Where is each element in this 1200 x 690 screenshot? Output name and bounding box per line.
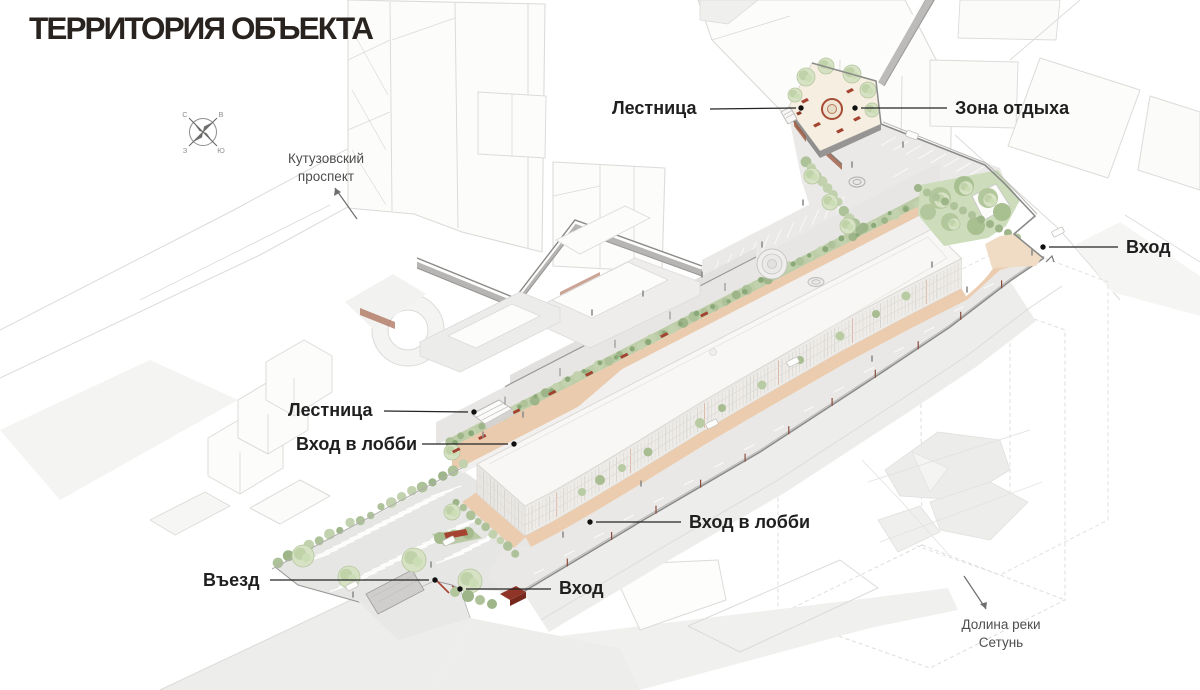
svg-text:проспект: проспект xyxy=(298,169,354,184)
svg-text:Вход в лобби: Вход в лобби xyxy=(689,512,810,532)
svg-text:Зона отдыха: Зона отдыха xyxy=(955,98,1070,118)
svg-text:Ю: Ю xyxy=(217,146,225,155)
svg-text:Лестница: Лестница xyxy=(288,400,373,420)
svg-text:ТЕРРИТОРИЯ ОБЪЕКТА: ТЕРРИТОРИЯ ОБЪЕКТА xyxy=(29,10,373,46)
svg-text:В: В xyxy=(218,110,223,119)
svg-text:Лестница: Лестница xyxy=(612,98,697,118)
svg-text:Въезд: Въезд xyxy=(203,570,260,590)
svg-text:Вход: Вход xyxy=(1126,237,1171,257)
svg-text:С: С xyxy=(182,110,188,119)
svg-text:Долина реки: Долина реки xyxy=(961,617,1040,632)
svg-text:Вход: Вход xyxy=(559,578,604,598)
svg-text:Кутузовский: Кутузовский xyxy=(288,151,364,166)
svg-text:Вход в лобби: Вход в лобби xyxy=(296,434,417,454)
svg-text:Сетунь: Сетунь xyxy=(979,635,1023,650)
svg-text:З: З xyxy=(183,146,188,155)
